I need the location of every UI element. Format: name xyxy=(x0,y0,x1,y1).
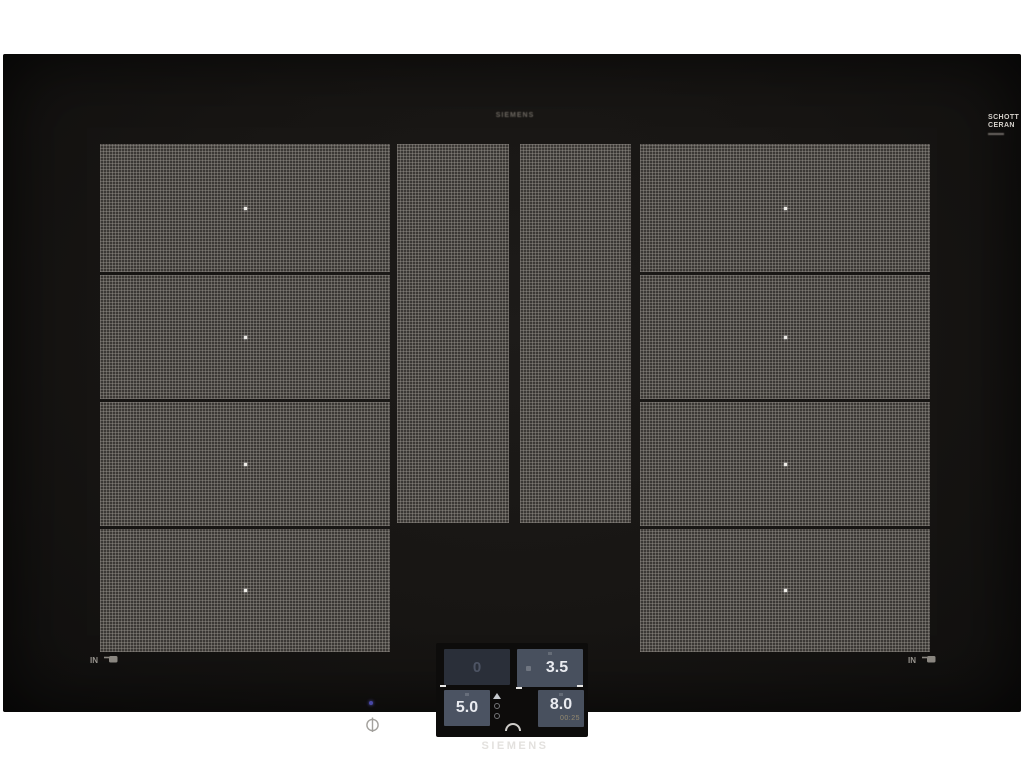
zone-center-dot xyxy=(784,589,787,592)
function-key-icon[interactable] xyxy=(494,713,500,719)
power-icon[interactable] xyxy=(364,716,381,733)
panel-center-keys xyxy=(491,693,503,719)
cooking-zone-rear-left xyxy=(100,144,390,272)
function-key-icon[interactable] xyxy=(494,703,500,709)
slider-arc-icon[interactable] xyxy=(505,723,521,731)
rear-right-power-level: 3.5 xyxy=(546,660,568,676)
zone-center-dot xyxy=(784,207,787,210)
cooking-zone-front-left xyxy=(100,529,390,652)
schott-ceran-subtext-bar xyxy=(988,133,1004,135)
display-rear-left-zone[interactable]: 0 xyxy=(444,649,510,685)
cooking-zone-mid-front-right xyxy=(640,402,930,526)
in-label: IN xyxy=(90,656,98,665)
display-rear-right-zone[interactable]: 3.5 xyxy=(517,649,583,687)
zone-center-dot xyxy=(244,589,247,592)
status-led xyxy=(369,701,373,705)
rear-left-power-level: 0 xyxy=(473,659,481,676)
cooking-zone-mid-front-left xyxy=(100,402,390,526)
siemens-logo: SIEMENS xyxy=(465,740,565,752)
cooking-zone-front-right xyxy=(640,529,930,652)
zone-indicator-icon xyxy=(559,693,563,696)
pan-icon xyxy=(103,654,119,666)
model-print-label: SIEMENS xyxy=(481,112,549,119)
cooking-zone-center-right-strip xyxy=(520,144,631,523)
cooking-zone-rear-right xyxy=(640,144,930,272)
up-arrow-icon[interactable] xyxy=(493,693,501,699)
zone-indicator-icon xyxy=(465,693,469,696)
zone-center-dot xyxy=(244,336,247,339)
zone-center-dot xyxy=(784,336,787,339)
induction-cooktop-glass: SIEMENS SCHOTT CERAN IN IN xyxy=(3,54,1021,712)
touch-control-panel: 0 3.5 5.0 8.0 00:25 xyxy=(436,643,588,737)
zone-indicator-icon xyxy=(548,652,552,655)
in-label: IN xyxy=(908,656,916,665)
pan-detect-icon xyxy=(526,666,531,671)
front-left-power-level: 5.0 xyxy=(456,700,478,716)
cooking-zone-center-left-strip xyxy=(397,144,509,523)
display-front-right-zone[interactable]: 8.0 00:25 xyxy=(538,690,584,727)
cooking-zone-mid-rear-right xyxy=(640,275,930,399)
pan-icon xyxy=(921,654,937,666)
front-right-timer: 00:25 xyxy=(560,715,580,722)
product-photo: SIEMENS SCHOTT CERAN IN IN xyxy=(0,0,1024,768)
zone-center-dot xyxy=(784,463,787,466)
schott-ceran-line1: SCHOTT xyxy=(988,114,1022,122)
zone-center-dot xyxy=(244,207,247,210)
induction-mark-left: IN xyxy=(90,654,119,666)
schott-ceran-logo: SCHOTT CERAN xyxy=(988,114,1022,135)
display-front-left-zone[interactable]: 5.0 xyxy=(444,690,490,726)
schott-ceran-line2: CERAN xyxy=(988,122,1022,130)
cooking-zone-mid-rear-left xyxy=(100,275,390,399)
front-right-power-level: 8.0 xyxy=(550,697,572,713)
induction-mark-right: IN xyxy=(908,654,937,666)
zone-center-dot xyxy=(244,463,247,466)
